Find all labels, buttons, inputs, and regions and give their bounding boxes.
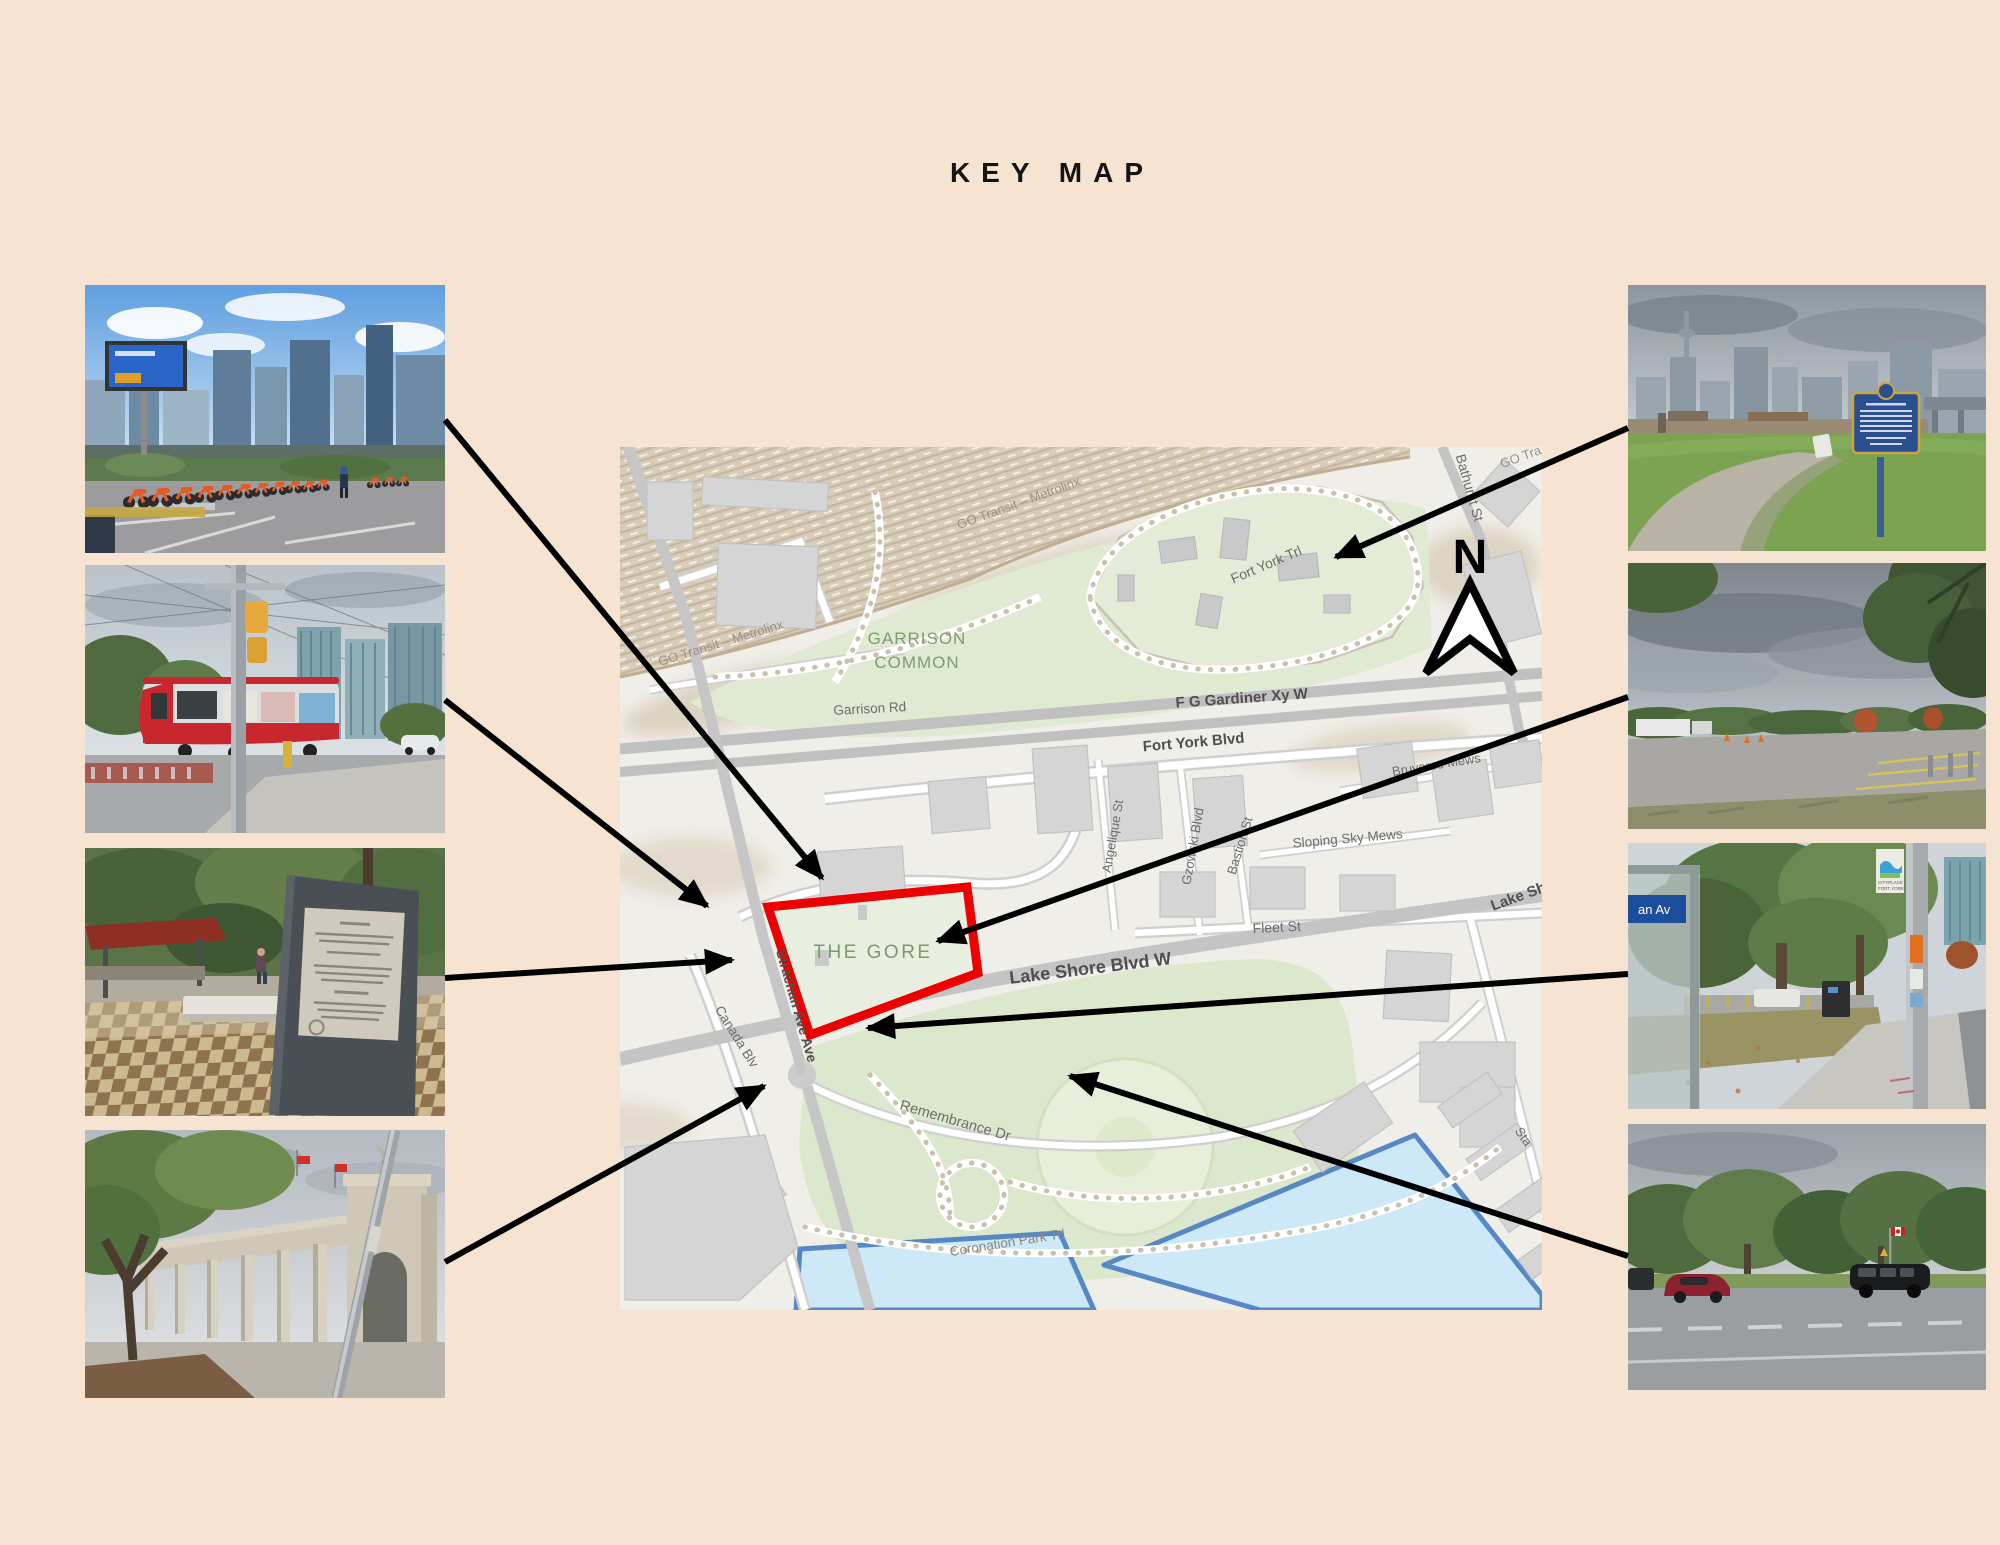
shelter-street-sign: an Av <box>1638 902 1671 917</box>
key-map: GO Transit – Metrolinx GO Transit – Metr… <box>620 447 1542 1310</box>
key-map-slide: KEY MAP <box>0 0 2000 1545</box>
svg-text:CITYPLACE: CITYPLACE <box>1878 880 1903 885</box>
monument-with-plaque <box>269 875 419 1116</box>
photo-parking-lot <box>1628 563 1986 829</box>
transit-shelter: an Av <box>1628 865 1700 1109</box>
photo-fort-york-plaque <box>1628 285 1986 551</box>
bollard <box>283 741 292 767</box>
litter-bin <box>1822 981 1850 1017</box>
bike-share-photo-art <box>85 285 445 553</box>
map-art: GO Transit – Metrolinx GO Transit – Metr… <box>620 447 1542 1310</box>
boulevard-photo-art <box>1628 1124 1986 1390</box>
label-garrison-common-line1: GARRISON <box>868 629 967 648</box>
photo-bike-share-station <box>85 285 445 553</box>
photo-boulevard-traffic <box>1628 1124 1986 1390</box>
photo-bus-stop: an Av CITYPL <box>1628 843 1986 1109</box>
page-title: KEY MAP <box>52 157 2000 189</box>
svg-text:FORT YORK: FORT YORK <box>1878 886 1904 891</box>
pole-sticker <box>1910 935 1923 963</box>
banner: CITYPLACE FORT YORK <box>1876 849 1904 893</box>
plaza-photo-art <box>85 848 445 1116</box>
photo-princes-gates <box>85 1130 445 1398</box>
plaque-photo-art <box>1628 285 1986 551</box>
colonnade-photo-art <box>85 1130 445 1398</box>
parking-lot-photo-art <box>1628 563 1986 829</box>
label-fleet-st: Fleet St <box>1252 918 1301 937</box>
streetcar-photo-art <box>85 565 445 833</box>
bus-stop-photo-art: an Av CITYPL <box>1628 843 1986 1109</box>
trailer <box>1636 719 1690 736</box>
photo-ttc-streetcar <box>85 565 445 833</box>
label-garrison-common-line2: COMMON <box>874 653 959 672</box>
road <box>1628 1288 1986 1390</box>
van <box>1754 989 1800 1007</box>
label-the-gore: THE GORE <box>813 942 932 963</box>
parked-car <box>1628 1268 1654 1290</box>
photo-memorial-plaza <box>85 848 445 1116</box>
